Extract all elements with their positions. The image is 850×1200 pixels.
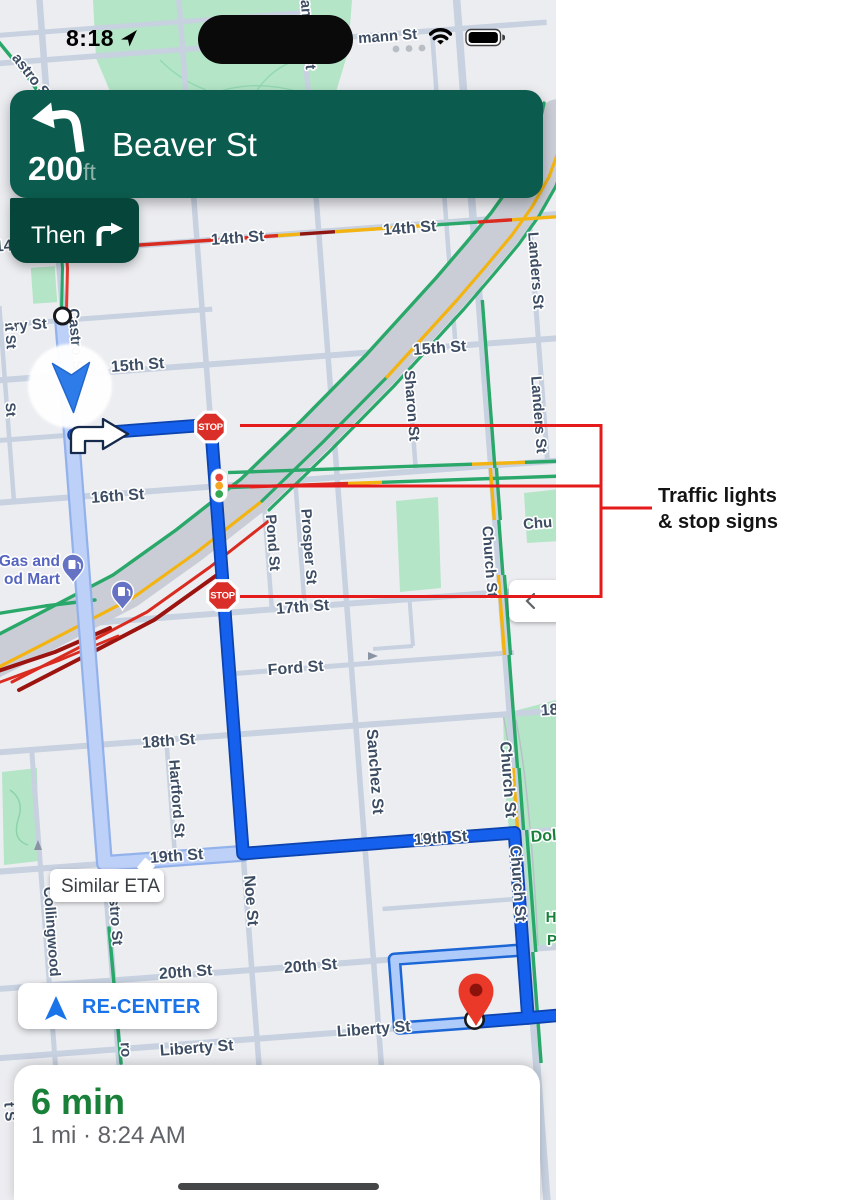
svg-text:St: St <box>2 402 19 417</box>
svg-text:STOP: STOP <box>210 591 235 602</box>
svg-text:Gas and: Gas and <box>0 553 60 570</box>
svg-text:STOP: STOP <box>198 422 223 433</box>
svg-text:H: H <box>546 909 557 926</box>
svg-text:18: 18 <box>540 701 559 719</box>
svg-text:P: P <box>547 932 557 949</box>
svg-text:Similar ETA: Similar ETA <box>61 876 160 897</box>
svg-text:ro: ro <box>116 1042 134 1058</box>
svg-text:stro St: stro St <box>105 897 126 946</box>
svg-text:Chu: Chu <box>522 514 552 533</box>
svg-text:Dol: Dol <box>530 827 557 846</box>
svg-text:od Mart: od Mart <box>4 571 60 588</box>
svg-text:t St: t St <box>2 326 20 350</box>
